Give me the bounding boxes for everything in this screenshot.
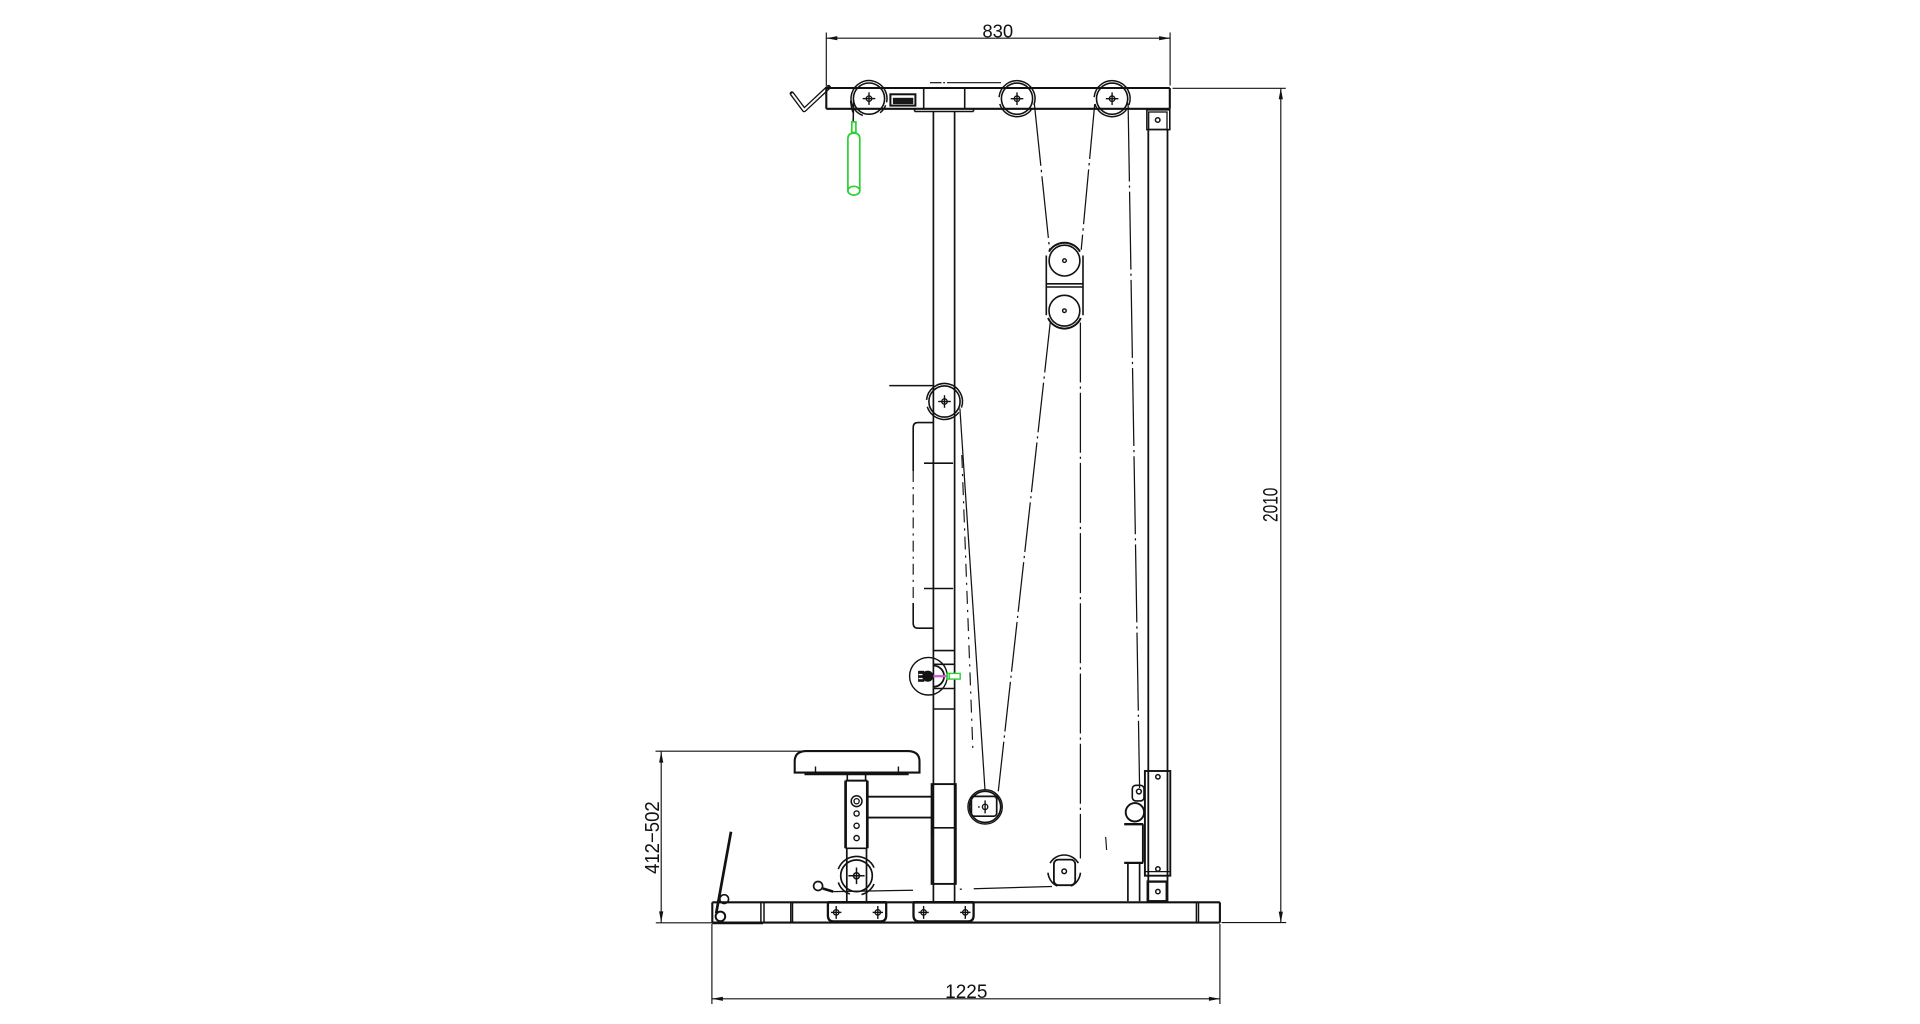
svg-text:412−502: 412−502 [641, 801, 664, 874]
svg-text:830: 830 [982, 20, 1013, 41]
svg-text:1225: 1225 [945, 982, 987, 1003]
svg-text:2010: 2010 [1258, 488, 1282, 522]
